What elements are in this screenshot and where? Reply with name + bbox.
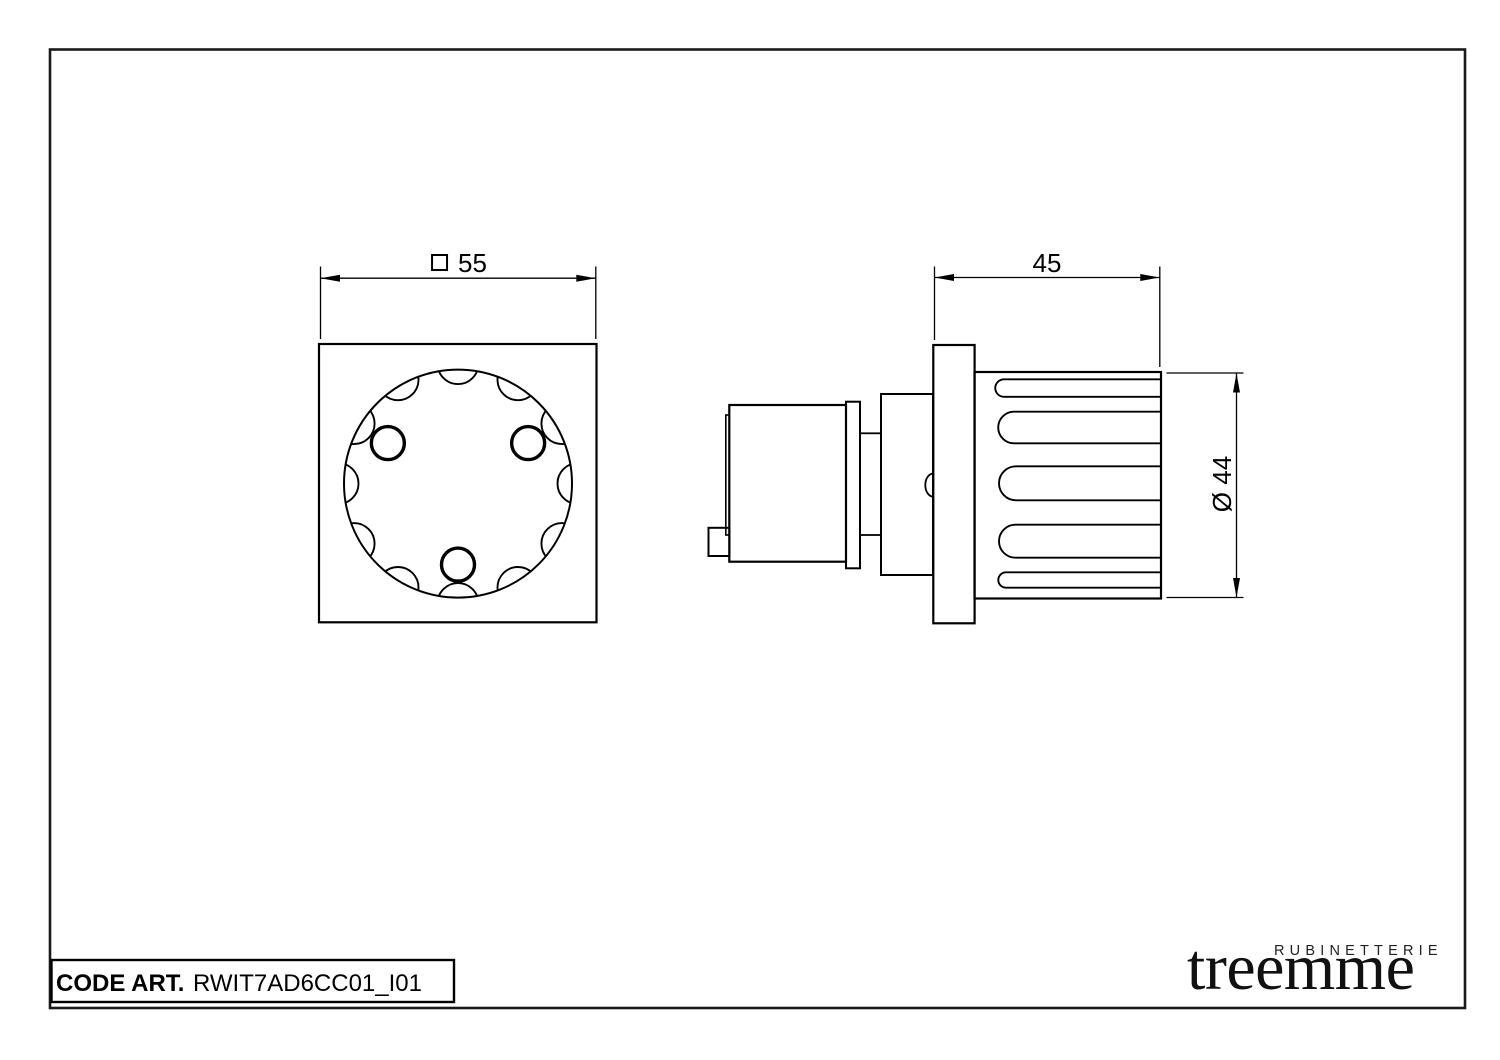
code-art-label: CODE ART. [56, 971, 184, 997]
technical-drawing-canvas [0, 0, 1500, 1060]
sheet-frame-border [50, 50, 1465, 1009]
knob-silhouette [975, 372, 1162, 599]
lock-ring [846, 402, 860, 569]
front-view [318, 343, 599, 624]
dim-value-55: 55 [458, 251, 487, 275]
arrowhead-left [935, 274, 955, 281]
arrowhead-top [1233, 373, 1240, 393]
knob-face-circle [344, 370, 572, 598]
arrowhead-right [1140, 274, 1160, 281]
dim-label-side-depth: 45 [1033, 251, 1062, 275]
arrowhead-bottom [1233, 578, 1240, 598]
dim-label-front-square: 55 [431, 251, 487, 275]
dim-value-45: 45 [1033, 251, 1062, 275]
code-art-value: RWIT7AD6CC01_I01 [193, 971, 422, 997]
dim-label-knob-diameter: Ø 44 [1209, 456, 1235, 512]
dimension-side-depth [935, 267, 1160, 368]
knob-flutes [995, 379, 1161, 587]
valve-body [729, 405, 846, 562]
stem-collar [860, 433, 881, 535]
arrowhead-left [321, 275, 341, 282]
drawing-sheet: 55 45 Ø 44 CODE ART. RWIT7AD6CC01_I01 RU… [0, 0, 1500, 1060]
wall-flange [933, 345, 974, 623]
arrowhead-right [576, 275, 596, 282]
square-symbol [431, 254, 448, 271]
logo-brand: treemme [1187, 938, 1414, 998]
side-view [709, 345, 1162, 623]
face-holes [371, 427, 544, 581]
